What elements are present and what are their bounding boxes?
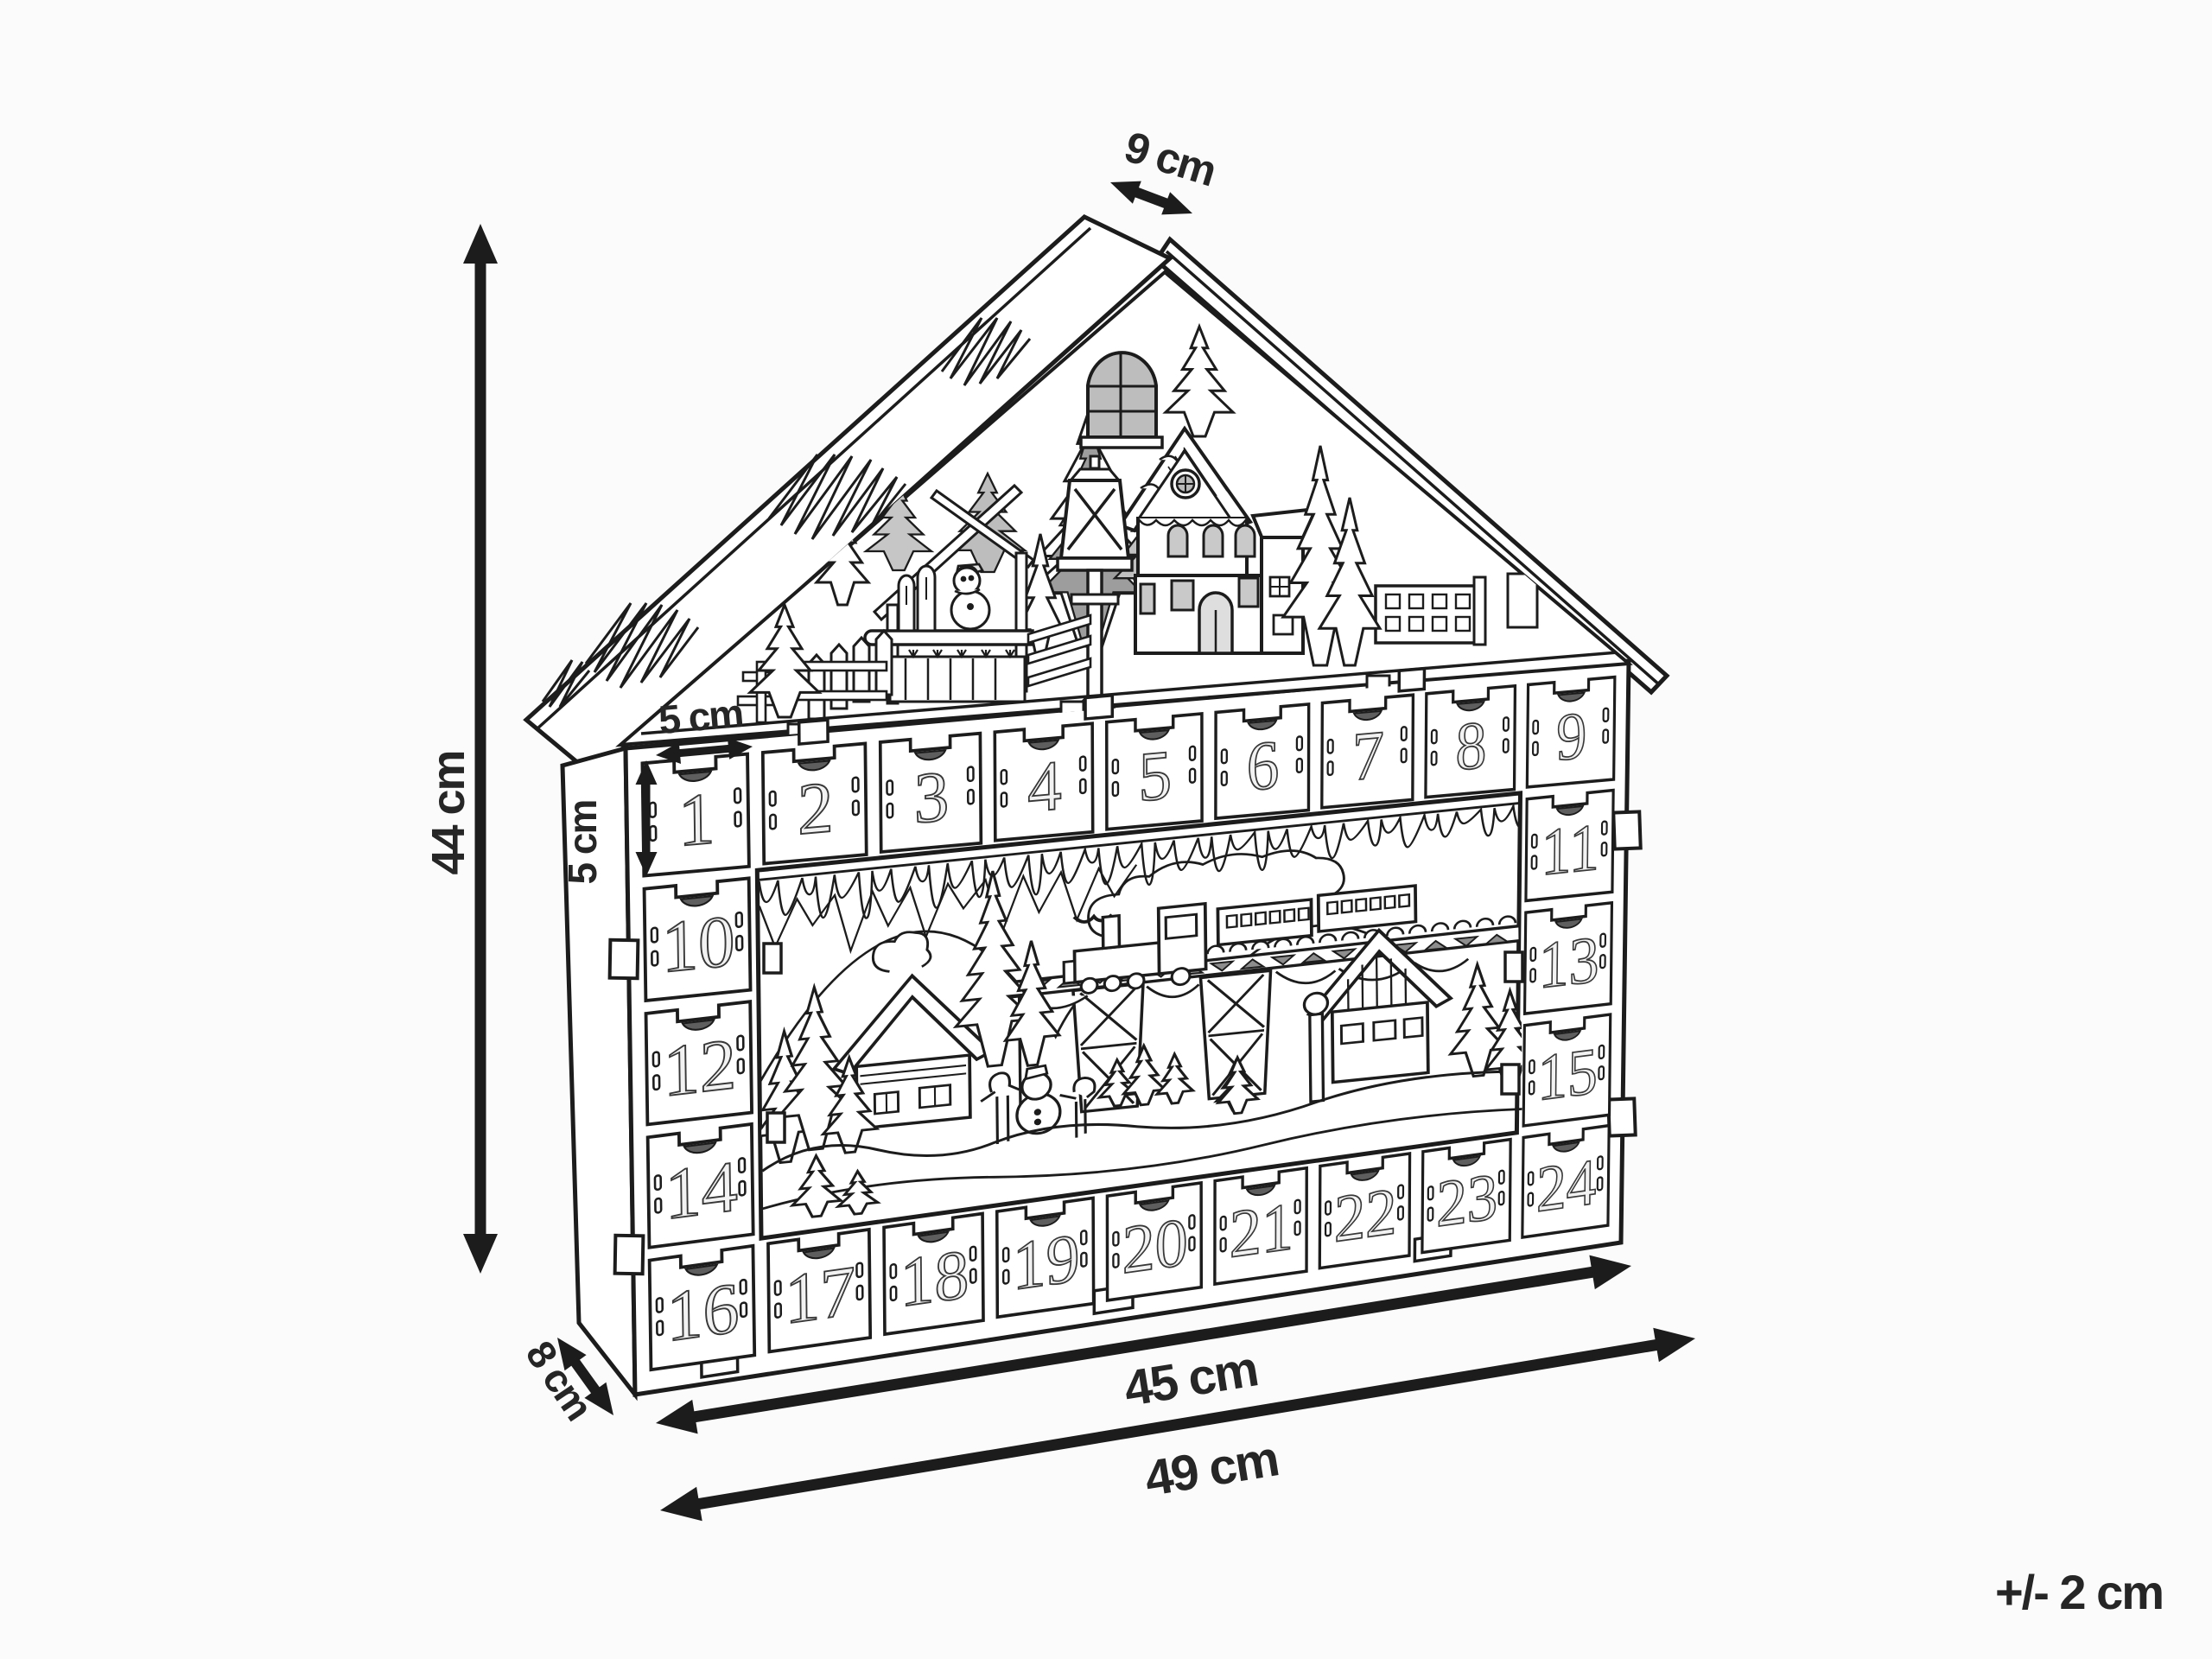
svg-text:24: 24 [1536,1145,1597,1226]
svg-text:23: 23 [1436,1160,1497,1242]
svg-text:10: 10 [661,900,735,989]
svg-text:7: 7 [1352,716,1384,795]
svg-text:8: 8 [1455,708,1487,785]
svg-text:6: 6 [1247,725,1280,805]
svg-text:3: 3 [913,756,949,839]
svg-text:+/- 2 cm: +/- 2 cm [1995,1565,2163,1619]
svg-text:20: 20 [1122,1203,1188,1288]
svg-text:19: 19 [1013,1219,1080,1306]
svg-text:4: 4 [1027,747,1062,828]
svg-text:16: 16 [666,1268,740,1357]
svg-text:5 cm: 5 cm [560,800,605,884]
svg-text:18: 18 [899,1236,969,1323]
svg-text:11: 11 [1541,810,1599,890]
svg-text:5 cm: 5 cm [657,690,744,742]
svg-text:15: 15 [1537,1034,1598,1115]
svg-text:14: 14 [664,1147,738,1236]
svg-text:1: 1 [677,778,715,862]
svg-text:44 cm: 44 cm [423,751,474,874]
svg-text:13: 13 [1538,921,1599,1002]
svg-text:22: 22 [1334,1174,1397,1257]
svg-text:2: 2 [798,766,834,850]
svg-text:9: 9 [1556,698,1587,775]
svg-text:21: 21 [1230,1188,1294,1272]
svg-text:12: 12 [663,1024,737,1112]
svg-text:5: 5 [1139,736,1173,817]
svg-text:17: 17 [785,1251,856,1339]
